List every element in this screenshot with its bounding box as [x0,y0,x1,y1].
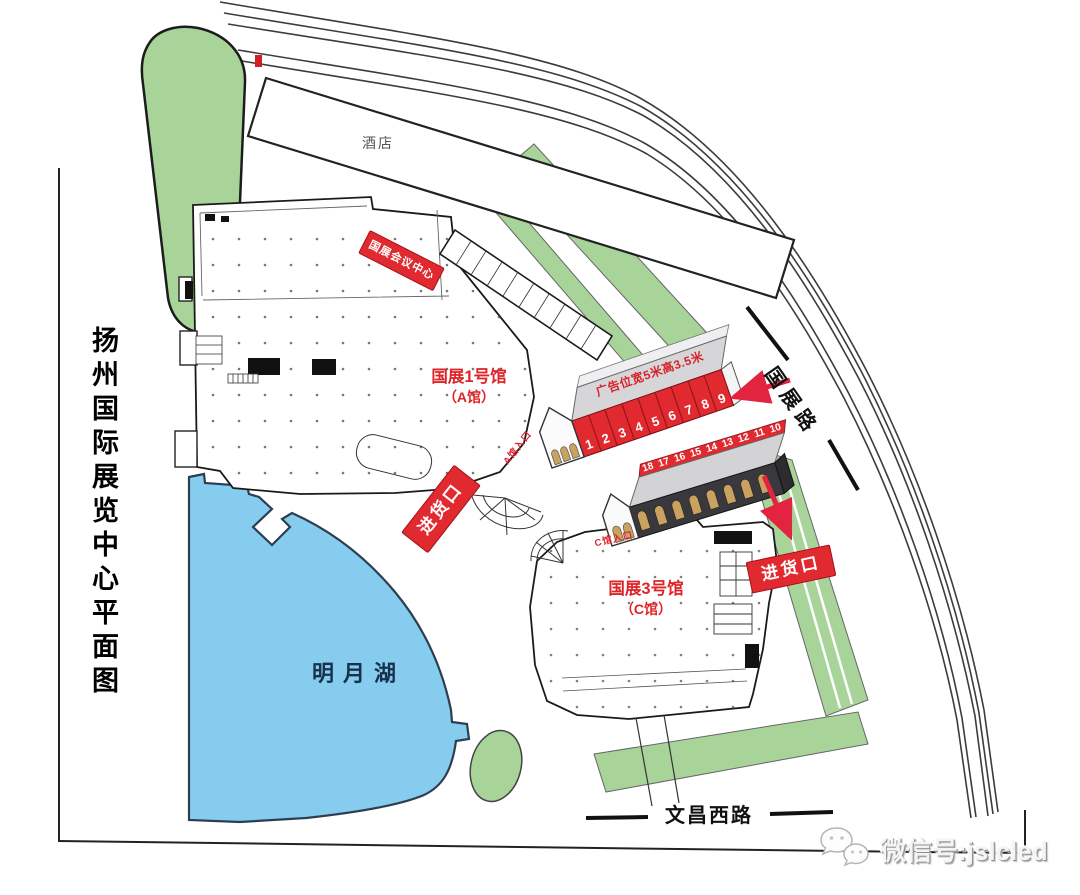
watermark: 微信号:jslcled [818,826,1048,872]
hall-c-sub: （C馆） [582,600,710,619]
site-plan: 扬州国际展览中心平面图 酒店 国展会议中心 国展1号馆 （A馆） 国展3号馆 （… [0,0,1080,895]
lake-label: 明月湖 [312,656,405,688]
wechat-icon [818,826,872,872]
red-marker [255,55,262,67]
hall-a-sub: （A馆） [405,388,533,407]
hall-c-name: 国展3号馆 [582,578,710,600]
green-strip-bottom [594,712,868,792]
site-plan-drawing [0,0,1080,895]
watermark-text: 微信号:jslcled [880,831,1048,868]
wenchang-road-label: 文昌西路 [650,799,768,828]
hall-a-label: 国展1号馆 （A馆） [405,366,533,407]
page-title: 扬州国际展览中心平面图 [84,326,123,700]
green-blob-bottom [463,725,529,807]
hall-c-label: 国展3号馆 （C馆） [582,578,710,619]
hall-a-name: 国展1号馆 [405,366,533,388]
hotel-label: 酒店 [362,133,394,153]
